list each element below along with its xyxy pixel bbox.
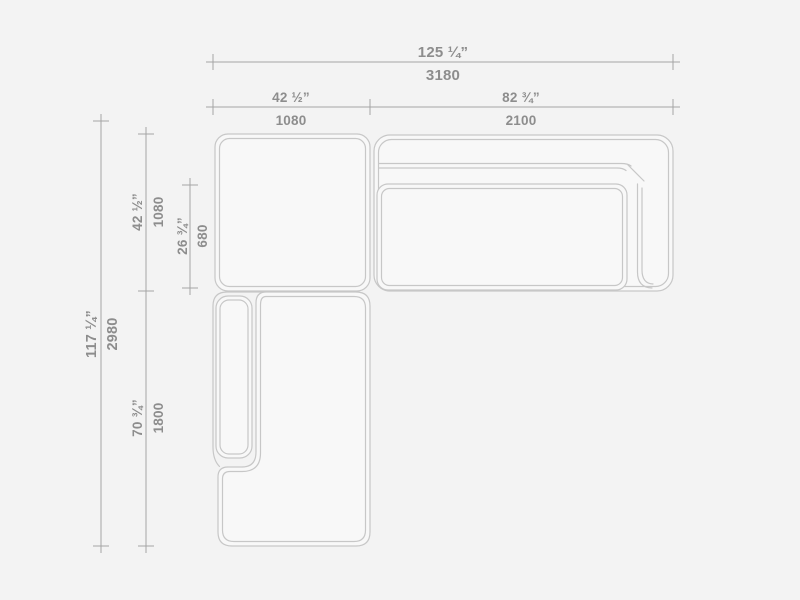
dim-label-chaise-segment-inches: 70 ¾” xyxy=(130,399,145,437)
chaise-module xyxy=(213,292,370,546)
dim-label-side-top-segment-mm: 1080 xyxy=(151,197,166,228)
right-sofa-module xyxy=(374,135,673,291)
dimension-lines-group xyxy=(93,54,680,553)
sofa-dimension-diagram: 125 ¼” 3180 42 ½” 1080 82 ¾” 2100 117 ¼”… xyxy=(0,0,800,600)
dim-label-chaise-segment-mm: 1800 xyxy=(151,403,166,434)
dim-label-total-depth-mm: 2980 xyxy=(105,317,121,350)
dim-label-right-segment-inches: 82 ¾” xyxy=(502,90,540,105)
dim-label-left-segment-inches: 42 ½” xyxy=(272,90,310,105)
square-ottoman-module xyxy=(215,134,370,291)
dim-label-seat-depth-mm: 680 xyxy=(195,224,210,247)
furniture-group xyxy=(213,134,673,546)
sofa-seat-cushion-outline xyxy=(377,184,627,290)
dim-label-side-top-segment-inches: 42 ½” xyxy=(130,193,145,231)
dim-label-total-width-inches: 125 ¼” xyxy=(418,44,468,61)
dim-label-total-depth-inches: 117 ¼” xyxy=(84,310,100,358)
dim-label-total-width-mm: 3180 xyxy=(426,67,460,84)
dim-label-seat-depth-inches: 26 ¾” xyxy=(175,217,190,255)
technical-drawing-canvas: 125 ¼” 3180 42 ½” 1080 82 ¾” 2100 117 ¼”… xyxy=(0,0,800,600)
dim-label-left-segment-mm: 1080 xyxy=(276,113,307,128)
ottoman-outer-outline xyxy=(215,134,370,291)
chaise-armrest-outline xyxy=(216,296,252,458)
dim-label-right-segment-mm: 2100 xyxy=(506,113,537,128)
